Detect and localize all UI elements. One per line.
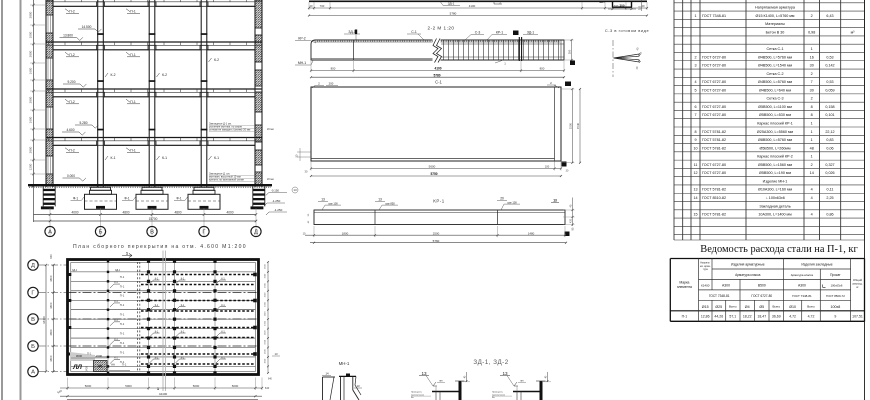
- svg-text:ГОСТ 6727-80: ГОСТ 6727-80: [751, 294, 772, 298]
- svg-text:1: 1: [811, 130, 813, 134]
- svg-text:С-1: С-1: [435, 80, 442, 85]
- svg-text:20 мм: 20 мм: [267, 128, 274, 131]
- svg-text:П-1: П-1: [130, 53, 136, 57]
- svg-text:13: 13: [378, 198, 382, 202]
- svg-text:А: А: [31, 370, 35, 376]
- svg-text:1500: 1500: [568, 122, 572, 129]
- svg-text:15700: 15700: [149, 217, 158, 221]
- svg-text:2500: 2500: [433, 231, 440, 235]
- svg-text:Ø25А300, L=5560 мм: Ø25А300, L=5560 мм: [757, 130, 794, 134]
- svg-text:Арматура класса: Арматура класса: [791, 273, 814, 277]
- svg-text:36,69: 36,69: [772, 314, 781, 318]
- svg-text:Ø4В500, L=5760 мм: Ø4В500, L=5760 мм: [758, 80, 793, 84]
- svg-text:А: А: [48, 230, 52, 236]
- svg-text:стенам не заводить (алиев) 20: стенам не заводить (алиев) 20 мм: [209, 128, 251, 132]
- svg-text:1800: 1800: [342, 231, 349, 235]
- svg-text:13: 13: [553, 199, 557, 203]
- svg-text:0,11: 0,11: [827, 188, 834, 192]
- svg-text:57,1: 57,1: [729, 314, 736, 318]
- svg-text:20 мм: 20 мм: [267, 178, 274, 181]
- svg-text:2800: 2800: [29, 50, 33, 57]
- svg-text:4.600: 4.600: [67, 128, 75, 132]
- svg-text:2: 2: [694, 55, 696, 59]
- svg-text:ГОСТ 6727-80: ГОСТ 6727-80: [702, 171, 726, 175]
- svg-text:ЗД-1: ЗД-1: [115, 269, 121, 272]
- svg-text:8: 8: [694, 130, 696, 134]
- svg-text:Закладная деталь: Закладная деталь: [759, 204, 790, 208]
- svg-text:100х8: 100х8: [831, 305, 841, 309]
- svg-text:44,26: 44,26: [714, 314, 723, 318]
- svg-text:С-3 в готовом виде: С-3 в готовом виде: [605, 28, 649, 33]
- svg-text:ГОСТ 8510-82: ГОСТ 8510-82: [702, 196, 726, 200]
- svg-text:11: 11: [694, 163, 698, 167]
- svg-text:Ф-1: Ф-1: [176, 197, 181, 201]
- svg-text:КР-1: КР-1: [496, 31, 503, 35]
- svg-text:4: 4: [811, 213, 813, 217]
- svg-text:9.200: 9.200: [68, 80, 76, 84]
- svg-text:9: 9: [834, 314, 836, 318]
- svg-text:Ø5: Ø5: [759, 305, 764, 309]
- svg-text:ЗД-1: ЗД-1: [527, 31, 534, 35]
- svg-text:2: 2: [811, 72, 813, 76]
- svg-text:0,026: 0,026: [825, 171, 834, 175]
- svg-text:ГОСТ 8509-72: ГОСТ 8509-72: [826, 294, 845, 298]
- svg-text:ГОСТ 5781-82: ГОСТ 5781-82: [702, 213, 726, 217]
- svg-text:13: 13: [356, 384, 360, 388]
- svg-text:5600: 5600: [429, 165, 436, 169]
- svg-text:800: 800: [540, 67, 545, 71]
- svg-text:2800: 2800: [29, 146, 33, 153]
- svg-text:0,06: 0,06: [826, 146, 833, 150]
- svg-text:1200: 1200: [29, 163, 33, 170]
- svg-text:П-1: П-1: [120, 303, 125, 307]
- svg-text:В500: В500: [758, 284, 766, 288]
- svg-text:ГОСТ 6727-80: ГОСТ 6727-80: [702, 163, 726, 167]
- svg-text:1: 1: [811, 138, 813, 142]
- svg-text:4800: 4800: [49, 355, 53, 362]
- svg-text:1: 1: [811, 47, 813, 51]
- svg-text:П-1: П-1: [130, 149, 136, 153]
- svg-text:Ф-1: Ф-1: [73, 197, 78, 201]
- svg-text:4,72: 4,72: [808, 314, 815, 318]
- svg-text:200: 200: [329, 82, 334, 86]
- svg-text:4100: 4100: [434, 67, 441, 71]
- svg-text:4100: 4100: [469, 4, 476, 8]
- svg-text:18,22: 18,22: [743, 314, 752, 318]
- svg-text:1000: 1000: [29, 31, 33, 38]
- svg-text:Ø10А300, L=160 мм: Ø10А300, L=160 мм: [758, 188, 793, 192]
- svg-text:Ø4В500, L=640 мм: Ø4В500, L=640 мм: [759, 88, 791, 92]
- svg-text:3600: 3600: [76, 354, 83, 358]
- svg-text:7: 7: [811, 80, 813, 84]
- svg-text:П-1: П-1: [130, 100, 136, 104]
- svg-text:6: 6: [694, 105, 696, 109]
- svg-text:Ø25: Ø25: [715, 305, 722, 309]
- svg-text:8: 8: [811, 105, 813, 109]
- svg-text:Изделия арматурные: Изделия арматурные: [731, 263, 765, 267]
- svg-text:К-1: К-1: [162, 156, 167, 160]
- svg-text:800: 800: [331, 67, 336, 71]
- svg-text:44400: 44400: [159, 392, 168, 396]
- svg-text:ГОСТ 7348-81: ГОСТ 7348-81: [702, 14, 726, 18]
- svg-text:Д: Д: [31, 263, 35, 269]
- svg-text:Вч.: Вч.: [411, 397, 415, 399]
- svg-text:Сетка С-3: Сетка С-3: [767, 97, 784, 101]
- svg-text:Изделия закладные: Изделия закладные: [801, 263, 832, 267]
- svg-text:Всего: Всего: [773, 305, 781, 309]
- svg-text:2200: 2200: [96, 354, 103, 358]
- svg-text:Ø5В500, L=1560 мм: Ø5В500, L=1560 мм: [758, 163, 793, 167]
- svg-text:∟100х63х6: ∟100х63х6: [765, 196, 785, 200]
- svg-text:1600: 1600: [29, 116, 33, 123]
- svg-text:13: 13: [693, 188, 697, 192]
- svg-text:15: 15: [693, 213, 697, 217]
- svg-text:МН-1: МН-1: [298, 61, 306, 65]
- svg-text:30: 30: [810, 64, 814, 68]
- svg-text:М1: М1: [98, 365, 103, 369]
- svg-text:420: 420: [570, 218, 573, 223]
- svg-text:ГОСТ 6727-80: ГОСТ 6727-80: [702, 55, 726, 59]
- svg-text:Ø4В500, L=5760 мм: Ø4В500, L=5760 мм: [758, 55, 793, 59]
- svg-text:П-1: П-1: [120, 322, 125, 326]
- svg-text:2: 2: [811, 14, 813, 18]
- svg-text:П-1: П-1: [120, 350, 125, 354]
- svg-text:14: 14: [810, 171, 814, 175]
- svg-text:16: 16: [810, 55, 814, 59]
- svg-text:ЗД-1: ЗД-1: [72, 269, 78, 272]
- svg-text:4: 4: [694, 80, 696, 84]
- svg-text:крепить по монтажной схеме: крепить по монтажной схеме: [209, 178, 245, 182]
- svg-text:ГОСТ 7348-81: ГОСТ 7348-81: [792, 294, 812, 298]
- svg-text:Приварить: Приварить: [492, 392, 504, 394]
- svg-text:ГОСТ 6727-80: ГОСТ 6727-80: [702, 88, 726, 92]
- svg-text:13: 13: [321, 198, 325, 202]
- svg-text:Ø5В500, L=1100 мм: Ø5В500, L=1100 мм: [758, 105, 792, 109]
- svg-text:ЗД-1: ЗД-1: [448, 2, 455, 6]
- svg-text:-1.250: -1.250: [274, 208, 283, 212]
- svg-text:элемента: элемента: [677, 285, 692, 289]
- svg-text:ГОСТ 6727-80: ГОСТ 6727-80: [702, 105, 726, 109]
- svg-text:П-1: П-1: [682, 314, 688, 318]
- svg-text:Вч.: Вч.: [492, 397, 496, 399]
- svg-text:-0.150: -0.150: [271, 189, 279, 193]
- svg-text:Напрягаемая арматура: Напрягаемая арматура: [755, 6, 796, 10]
- svg-text:12,86: 12,86: [701, 314, 710, 318]
- svg-text:Ø8В500, L=5760 мм: Ø8В500, L=5760 мм: [758, 138, 793, 142]
- svg-text:5000: 5000: [193, 384, 200, 388]
- svg-text:П-2: П-2: [69, 53, 75, 57]
- svg-text:П-1: П-1: [120, 313, 125, 317]
- svg-text:ГОСТ 5781-82: ГОСТ 5781-82: [702, 130, 726, 134]
- svg-text:КР-2: КР-2: [298, 37, 305, 41]
- svg-text:П-1: П-1: [120, 332, 125, 336]
- svg-text:К-1: К-1: [214, 156, 219, 160]
- svg-text:1540: 1540: [576, 122, 580, 129]
- svg-text:-1.250: -1.250: [272, 199, 281, 203]
- svg-text:0.000: 0.000: [67, 174, 75, 178]
- svg-text:ЛЛ: ЛЛ: [72, 364, 82, 371]
- svg-text:ГОСТ 7348-81: ГОСТ 7348-81: [709, 294, 730, 298]
- svg-text:4800: 4800: [49, 275, 53, 282]
- svg-text:5780: 5780: [433, 73, 440, 77]
- svg-text:10: 10: [693, 146, 697, 150]
- svg-text:Ø5В500, L=260мм: Ø5В500, L=260мм: [759, 146, 790, 150]
- svg-text:0,327: 0,327: [825, 163, 834, 167]
- svg-text:П-1: П-1: [122, 363, 127, 367]
- svg-text:4800: 4800: [174, 210, 181, 214]
- svg-text:Марка: Марка: [679, 281, 689, 285]
- svg-text:К-2: К-2: [214, 58, 219, 62]
- svg-text:К-1: К-1: [111, 156, 116, 160]
- svg-text:Приварить: Приварить: [411, 392, 423, 394]
- svg-text:30: 30: [810, 88, 814, 92]
- svg-text:ЗД-1: ЗД-1: [348, 30, 355, 34]
- svg-text:0,83: 0,83: [826, 138, 833, 142]
- svg-text:П-2: П-2: [69, 10, 75, 14]
- svg-text:13: 13: [274, 352, 278, 356]
- svg-text:5000: 5000: [232, 384, 239, 388]
- svg-text:0,142: 0,142: [825, 64, 834, 68]
- svg-text:300: 300: [568, 49, 572, 54]
- svg-text:4: 4: [811, 188, 813, 192]
- svg-text:18,47: 18,47: [757, 314, 766, 318]
- svg-text:ГОСТ 5781-82: ГОСТ 5781-82: [702, 146, 726, 150]
- svg-text:22,12: 22,12: [825, 130, 834, 134]
- svg-text:П-1: П-1: [130, 10, 136, 14]
- svg-text:6,43: 6,43: [826, 14, 833, 18]
- svg-text:5.280: 5.280: [80, 121, 88, 125]
- svg-text:5: 5: [694, 88, 696, 92]
- svg-text:5750: 5750: [430, 172, 437, 176]
- svg-text:Изделие МН-1: Изделие МН-1: [763, 179, 788, 183]
- svg-text:0,53: 0,53: [826, 80, 833, 84]
- svg-text:325: 325: [638, 5, 642, 10]
- svg-text:5780: 5780: [450, 12, 457, 16]
- svg-text:8: 8: [811, 113, 813, 117]
- svg-text:1: 1: [811, 122, 813, 126]
- svg-text:Прокат: Прокат: [830, 273, 841, 277]
- svg-text:3: 3: [694, 64, 696, 68]
- svg-text:300: 300: [619, 3, 624, 7]
- svg-text:КР-1: КР-1: [433, 199, 444, 204]
- svg-text:5000: 5000: [125, 384, 132, 388]
- svg-text:2,25: 2,25: [826, 196, 833, 200]
- svg-text:700: 700: [320, 4, 325, 8]
- svg-text:шаг 100: шаг 100: [507, 200, 517, 204]
- svg-text:С-1: С-1: [411, 30, 417, 34]
- svg-text:МН-1: МН-1: [339, 361, 350, 366]
- svg-text:П-2: П-2: [69, 149, 75, 153]
- svg-text:13.800: 13.800: [63, 33, 73, 37]
- svg-text:2800: 2800: [29, 96, 33, 103]
- svg-text:2-2 М 1:20: 2-2 М 1:20: [428, 26, 455, 31]
- svg-text:Арматура класса: Арматура класса: [735, 273, 761, 277]
- svg-text:Д: Д: [254, 230, 258, 236]
- svg-text:К1400: К1400: [701, 284, 710, 288]
- svg-text:Материалы: Материалы: [765, 22, 785, 26]
- svg-text:0,158: 0,158: [825, 105, 834, 109]
- svg-text:Сетка С-1: Сетка С-1: [767, 47, 784, 51]
- svg-text:0,86: 0,86: [826, 213, 833, 217]
- svg-text:П-1: П-1: [120, 341, 125, 345]
- svg-text:0,98: 0,98: [808, 30, 815, 34]
- svg-text:2400: 2400: [86, 366, 89, 372]
- svg-text:П-1: П-1: [87, 353, 92, 356]
- svg-text:В: В: [150, 230, 154, 236]
- svg-text:13: 13: [293, 188, 297, 192]
- svg-text:ЗД-1, ЗД-2: ЗД-1, ЗД-2: [473, 359, 508, 366]
- svg-text:48: 48: [810, 146, 814, 150]
- svg-text:ГОСТ 5781-82: ГОСТ 5781-82: [702, 188, 726, 192]
- svg-text:4000: 4000: [226, 210, 233, 214]
- svg-text:0,101: 0,101: [825, 113, 834, 117]
- svg-text:1: 1: [811, 155, 813, 159]
- svg-text:14.500: 14.500: [82, 25, 92, 29]
- svg-text:шаг 100: шаг 100: [328, 201, 338, 205]
- svg-text:Ø10: Ø10: [789, 305, 796, 309]
- svg-text:ГОСТ 6727-80: ГОСТ 6727-80: [702, 80, 726, 84]
- svg-text:Ø15 К1400, L=5760 мм: Ø15 К1400, L=5760 мм: [756, 14, 795, 18]
- svg-text:4800: 4800: [49, 302, 53, 309]
- svg-text:С-3: С-3: [475, 31, 481, 35]
- svg-text:П-1: П-1: [120, 284, 125, 288]
- svg-text:10А300, L=1400 мм: 10А300, L=1400 мм: [758, 213, 792, 217]
- svg-text:Ведомость расхода стали на П-1: Ведомость расхода стали на П-1, кг: [700, 244, 857, 255]
- svg-text:100: 100: [545, 165, 550, 169]
- svg-text:ГОСТ 6727-80: ГОСТ 6727-80: [702, 64, 726, 68]
- svg-text:кг: кг: [856, 285, 858, 289]
- svg-text:МН: МН: [600, 0, 606, 4]
- svg-text:0,059: 0,059: [825, 88, 834, 92]
- svg-text:Каркас плоский КР-2: Каркас плоский КР-2: [757, 155, 793, 159]
- svg-text:4: 4: [811, 196, 813, 200]
- svg-text:шаг 850: шаг 850: [385, 201, 395, 205]
- svg-text:В: В: [31, 317, 35, 323]
- svg-text:АА: АА: [111, 363, 115, 367]
- svg-text:Бетон В 30: Бетон В 30: [766, 30, 785, 34]
- svg-text:Ф-1: Ф-1: [124, 197, 129, 201]
- svg-text:4000: 4000: [71, 210, 78, 214]
- svg-text:Ø5В500, L=190 мм: Ø5В500, L=190 мм: [759, 171, 791, 175]
- svg-text:П-1: П-1: [120, 294, 125, 298]
- svg-text:Б: Б: [99, 230, 103, 236]
- svg-text:2: 2: [811, 97, 813, 101]
- svg-text:9: 9: [694, 138, 696, 142]
- svg-text:100х63х6: 100х63х6: [831, 284, 843, 288]
- svg-text:Ø15: Ø15: [702, 305, 709, 309]
- svg-text:ГОСТ 5781-82: ГОСТ 5781-82: [702, 138, 726, 142]
- svg-text:Ø5В500, L=530 мм: Ø5В500, L=530 мм: [759, 113, 791, 117]
- svg-text:2800: 2800: [29, 11, 33, 18]
- svg-text:107,51: 107,51: [852, 314, 863, 318]
- svg-text:4800: 4800: [49, 329, 53, 336]
- svg-text:640: 640: [49, 254, 53, 259]
- svg-text:20: 20: [500, 197, 504, 201]
- svg-text:К-2: К-2: [162, 73, 167, 77]
- svg-text:К-2: К-2: [111, 73, 116, 77]
- svg-text:ГОСТ 6727-80: ГОСТ 6727-80: [702, 113, 726, 117]
- svg-text:0,53: 0,53: [826, 55, 833, 59]
- svg-text:Ø4В500, L=1540 мм: Ø4В500, L=1540 мм: [758, 64, 793, 68]
- svg-text:Ø4: Ø4: [745, 305, 750, 309]
- svg-text:П-2: П-2: [69, 100, 75, 104]
- svg-text:2: 2: [811, 163, 813, 167]
- svg-text:План сборного перекрытия на от: План сборного перекрытия на отм. 4.600 М…: [73, 244, 247, 250]
- svg-text:14: 14: [693, 196, 697, 200]
- svg-text:640: 640: [265, 386, 270, 390]
- svg-text:тура: тура: [703, 268, 709, 271]
- svg-text:Всего: Всего: [729, 305, 737, 309]
- svg-text:14: 14: [325, 372, 329, 376]
- svg-text:1: 1: [694, 14, 696, 18]
- svg-text:Б: Б: [31, 344, 35, 350]
- svg-text:7: 7: [694, 113, 696, 117]
- svg-text:5000: 5000: [85, 384, 92, 388]
- svg-text:1480: 1480: [528, 231, 535, 235]
- svg-text:4800: 4800: [122, 210, 129, 214]
- svg-text:18300: 18300: [42, 316, 46, 324]
- svg-text:1600: 1600: [29, 67, 33, 74]
- svg-text:Сетка С-2: Сетка С-2: [767, 72, 784, 76]
- svg-text:А300: А300: [798, 284, 806, 288]
- svg-text:5760: 5760: [433, 239, 440, 243]
- svg-text:П-1: П-1: [120, 275, 125, 279]
- svg-text:12: 12: [693, 171, 697, 175]
- svg-text:А300: А300: [722, 284, 730, 288]
- svg-text:4,72: 4,72: [789, 314, 796, 318]
- svg-text:Каркас плоский КР-1: Каркас плоский КР-1: [757, 122, 793, 126]
- svg-text:Всего: Всего: [807, 305, 815, 309]
